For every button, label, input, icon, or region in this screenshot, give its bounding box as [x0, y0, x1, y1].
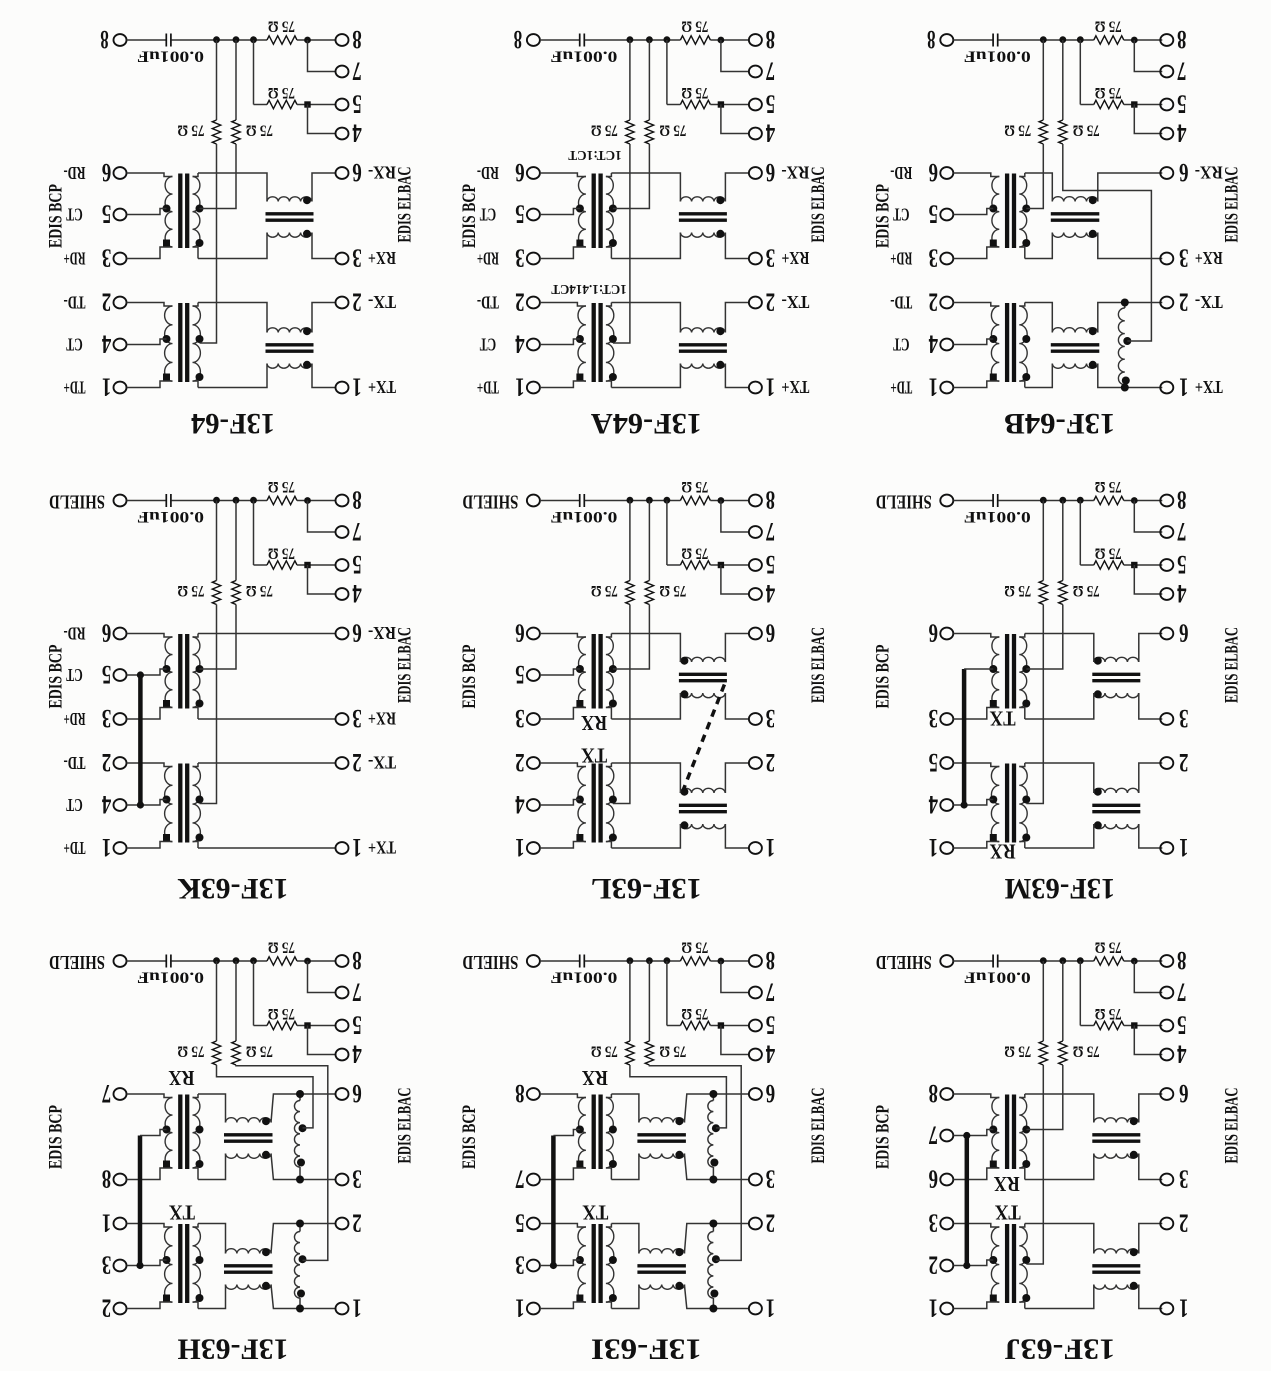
svg-text:3: 3 [1179, 1164, 1189, 1193]
svg-text:5: 5 [352, 89, 362, 118]
svg-text:1: 1 [1179, 833, 1189, 862]
svg-text:6: 6 [352, 1079, 362, 1108]
svg-text:75 Ω: 75 Ω [268, 545, 295, 562]
svg-text:1: 1 [929, 372, 939, 401]
svg-text:3: 3 [515, 704, 525, 733]
svg-text:RX+: RX+ [1195, 248, 1223, 268]
svg-text:8: 8 [927, 25, 936, 54]
svg-text:13F-64A: 13F-64A [591, 407, 702, 440]
svg-text:4: 4 [929, 790, 939, 819]
svg-text:75 Ω: 75 Ω [268, 18, 295, 35]
svg-text:EDIS ELBAC: EDIS ELBAC [396, 167, 416, 243]
svg-text:EDIS BCP: EDIS BCP [460, 1105, 480, 1169]
svg-text:3: 3 [352, 1164, 362, 1193]
svg-text:5: 5 [766, 550, 776, 579]
svg-text:1: 1 [515, 1293, 525, 1322]
svg-text:7: 7 [102, 1079, 112, 1108]
svg-text:RX: RX [990, 840, 1016, 864]
svg-text:RD-: RD- [477, 163, 499, 183]
svg-text:RX+: RX+ [368, 709, 396, 729]
svg-text:6: 6 [929, 618, 939, 647]
svg-text:2: 2 [102, 287, 112, 316]
svg-text:5: 5 [766, 89, 776, 118]
svg-text:6: 6 [766, 158, 776, 187]
svg-text:2: 2 [515, 748, 525, 777]
svg-text:6: 6 [929, 158, 939, 187]
svg-text:EDIS ELBAC: EDIS ELBAC [809, 627, 829, 703]
svg-text:7: 7 [1177, 517, 1187, 546]
svg-text:CT: CT [479, 204, 496, 224]
svg-text:5: 5 [515, 1208, 525, 1237]
svg-text:TX: TX [169, 1201, 195, 1225]
svg-text:2: 2 [929, 287, 939, 316]
svg-text:75 Ω: 75 Ω [681, 545, 708, 562]
svg-text:8: 8 [352, 25, 362, 54]
svg-text:1: 1 [352, 833, 362, 862]
svg-text:2: 2 [929, 1250, 939, 1279]
svg-text:TD-: TD- [890, 292, 912, 312]
svg-text:TD+: TD+ [890, 377, 912, 397]
svg-text:75 Ω: 75 Ω [1073, 1043, 1100, 1060]
svg-text:13F-64B: 13F-64B [1004, 407, 1115, 440]
svg-text:75 Ω: 75 Ω [681, 84, 708, 101]
svg-text:TX+: TX+ [368, 377, 396, 397]
svg-text:4: 4 [929, 329, 939, 358]
svg-text:TD-: TD- [477, 292, 499, 312]
svg-text:TX: TX [990, 707, 1016, 731]
svg-text:6: 6 [515, 618, 525, 647]
svg-text:4: 4 [515, 790, 525, 819]
svg-text:6: 6 [352, 618, 362, 647]
svg-text:EDIS BCP: EDIS BCP [460, 645, 480, 709]
svg-text:RD-: RD- [63, 623, 85, 643]
svg-text:RX-: RX- [368, 623, 396, 643]
svg-text:75 Ω: 75 Ω [1095, 1005, 1122, 1022]
svg-text:75 Ω: 75 Ω [1004, 1043, 1031, 1060]
svg-text:4: 4 [352, 579, 362, 608]
svg-text:RX: RX [581, 711, 607, 735]
svg-text:1: 1 [929, 833, 939, 862]
svg-text:75 Ω: 75 Ω [659, 1043, 686, 1060]
svg-text:75 Ω: 75 Ω [681, 18, 708, 35]
svg-text:TX: TX [582, 1201, 608, 1225]
svg-text:1CT:1.414CT: 1CT:1.414CT [551, 281, 627, 296]
svg-text:5: 5 [102, 660, 112, 689]
svg-text:0.001uF: 0.001uF [964, 508, 1031, 525]
svg-text:1: 1 [766, 833, 776, 862]
svg-text:5: 5 [1177, 1010, 1187, 1039]
svg-text:5: 5 [352, 550, 362, 579]
svg-text:RX: RX [994, 1172, 1020, 1196]
svg-text:8: 8 [515, 1079, 525, 1108]
svg-text:TX+: TX+ [368, 838, 396, 858]
svg-text:SHIELD: SHIELD [462, 490, 518, 512]
svg-text:TX-: TX- [368, 292, 396, 312]
svg-text:4: 4 [352, 1039, 362, 1068]
svg-text:2: 2 [766, 1208, 776, 1237]
svg-text:2: 2 [352, 1208, 362, 1237]
svg-text:3: 3 [1179, 704, 1189, 733]
svg-text:EDIS ELBAC: EDIS ELBAC [1222, 167, 1242, 243]
svg-text:0.001uF: 0.001uF [137, 508, 204, 525]
svg-text:EDIS ELBAC: EDIS ELBAC [1222, 1088, 1242, 1164]
svg-text:4: 4 [352, 118, 362, 147]
svg-text:TX-: TX- [368, 753, 396, 773]
svg-text:8: 8 [1177, 485, 1187, 514]
svg-text:4: 4 [102, 329, 112, 358]
svg-text:7: 7 [352, 517, 362, 546]
svg-text:75 Ω: 75 Ω [268, 478, 295, 495]
svg-text:2: 2 [766, 748, 776, 777]
svg-text:75 Ω: 75 Ω [178, 1043, 205, 1060]
svg-text:1: 1 [1179, 372, 1189, 401]
svg-text:2: 2 [352, 287, 362, 316]
svg-text:RX+: RX+ [368, 248, 396, 268]
svg-text:7: 7 [766, 517, 776, 546]
svg-text:3: 3 [102, 243, 112, 272]
svg-text:75 Ω: 75 Ω [268, 84, 295, 101]
svg-text:5: 5 [352, 1010, 362, 1039]
svg-text:75 Ω: 75 Ω [178, 122, 205, 139]
svg-text:3: 3 [102, 704, 112, 733]
svg-text:0.001uF: 0.001uF [137, 47, 204, 64]
svg-text:4: 4 [102, 790, 112, 819]
svg-text:7: 7 [1177, 977, 1187, 1006]
svg-text:6: 6 [1179, 1079, 1189, 1108]
svg-text:RD+: RD+ [63, 709, 85, 729]
svg-text:8: 8 [1177, 25, 1187, 54]
svg-text:1: 1 [766, 372, 776, 401]
svg-text:3: 3 [352, 704, 362, 733]
svg-text:0.001uF: 0.001uF [137, 968, 204, 985]
svg-text:3: 3 [102, 1250, 112, 1279]
svg-text:6: 6 [352, 158, 362, 187]
svg-text:5: 5 [1177, 550, 1187, 579]
svg-text:5: 5 [929, 199, 939, 228]
svg-text:EDIS BCP: EDIS BCP [47, 1105, 67, 1169]
svg-text:RX+: RX+ [781, 248, 809, 268]
svg-text:EDIS BCP: EDIS BCP [47, 184, 67, 248]
svg-text:TD-: TD- [63, 292, 85, 312]
svg-text:5: 5 [929, 748, 939, 777]
svg-text:75 Ω: 75 Ω [268, 1005, 295, 1022]
svg-text:CT: CT [66, 334, 83, 354]
svg-text:6: 6 [1179, 158, 1189, 187]
svg-text:EDIS ELBAC: EDIS ELBAC [1222, 627, 1242, 703]
svg-text:3: 3 [929, 1208, 939, 1237]
svg-text:2: 2 [1179, 287, 1189, 316]
svg-text:13F-63J: 13F-63J [1004, 1333, 1115, 1366]
svg-text:4: 4 [1177, 579, 1187, 608]
svg-text:3: 3 [766, 704, 776, 733]
svg-text:3: 3 [766, 243, 776, 272]
svg-text:6: 6 [929, 1164, 939, 1193]
svg-text:0.001uF: 0.001uF [964, 47, 1031, 64]
svg-text:7: 7 [352, 977, 362, 1006]
svg-text:8: 8 [102, 1164, 112, 1193]
svg-text:CT: CT [479, 334, 496, 354]
svg-text:EDIS ELBAC: EDIS ELBAC [809, 167, 829, 243]
svg-text:TX-: TX- [1195, 292, 1223, 312]
svg-text:1: 1 [515, 833, 525, 862]
svg-text:1: 1 [515, 372, 525, 401]
svg-text:13F-63K: 13F-63K [177, 872, 289, 905]
svg-text:5: 5 [515, 199, 525, 228]
svg-text:75 Ω: 75 Ω [681, 939, 708, 956]
svg-text:RX: RX [582, 1066, 608, 1090]
svg-text:0.001uF: 0.001uF [550, 47, 617, 64]
svg-text:75 Ω: 75 Ω [681, 478, 708, 495]
svg-text:8: 8 [1177, 946, 1187, 975]
svg-text:75 Ω: 75 Ω [1095, 939, 1122, 956]
svg-text:SHIELD: SHIELD [49, 490, 105, 512]
svg-text:EDIS BCP: EDIS BCP [460, 184, 480, 248]
svg-text:2: 2 [102, 1293, 112, 1322]
svg-text:75 Ω: 75 Ω [591, 582, 618, 599]
svg-text:TD-: TD- [63, 753, 85, 773]
svg-text:SHIELD: SHIELD [876, 490, 932, 512]
svg-text:75 Ω: 75 Ω [246, 122, 273, 139]
svg-text:CT: CT [893, 204, 910, 224]
svg-text:8: 8 [514, 25, 523, 54]
svg-text:4: 4 [766, 118, 776, 147]
svg-text:EDIS BCP: EDIS BCP [873, 645, 893, 709]
svg-text:1: 1 [352, 372, 362, 401]
svg-text:3: 3 [766, 1164, 776, 1193]
svg-text:EDIS ELBAC: EDIS ELBAC [396, 627, 416, 703]
svg-text:1CT:1CT: 1CT:1CT [568, 147, 622, 162]
svg-text:75 Ω: 75 Ω [1095, 18, 1122, 35]
svg-text:RD+: RD+ [477, 248, 499, 268]
svg-text:8: 8 [352, 485, 362, 514]
svg-text:4: 4 [1177, 118, 1187, 147]
svg-text:2: 2 [1179, 1208, 1189, 1237]
svg-text:0.001uF: 0.001uF [964, 968, 1031, 985]
svg-text:1: 1 [1179, 1293, 1189, 1322]
svg-text:CT: CT [893, 334, 910, 354]
svg-text:75 Ω: 75 Ω [681, 1005, 708, 1022]
svg-text:7: 7 [766, 56, 776, 85]
svg-text:0.001uF: 0.001uF [550, 968, 617, 985]
svg-text:1: 1 [102, 1208, 112, 1237]
svg-text:EDIS BCP: EDIS BCP [873, 184, 893, 248]
svg-text:75 Ω: 75 Ω [1095, 84, 1122, 101]
svg-text:13F-63L: 13F-63L [591, 872, 702, 905]
svg-text:CT: CT [66, 795, 83, 815]
svg-text:1: 1 [929, 1293, 939, 1322]
svg-text:6: 6 [766, 618, 776, 647]
svg-text:5: 5 [766, 1010, 776, 1039]
svg-text:3: 3 [929, 243, 939, 272]
svg-text:TX: TX [995, 1201, 1021, 1225]
svg-text:TX-: TX- [781, 292, 809, 312]
svg-text:13F-63I: 13F-63I [591, 1333, 702, 1366]
svg-text:2: 2 [515, 287, 525, 316]
svg-text:TD+: TD+ [477, 377, 499, 397]
svg-text:75 Ω: 75 Ω [1095, 545, 1122, 562]
svg-text:8: 8 [929, 1079, 939, 1108]
svg-text:2: 2 [766, 287, 776, 316]
svg-text:7: 7 [352, 56, 362, 85]
svg-text:6: 6 [1179, 618, 1189, 647]
svg-text:EDIS ELBAC: EDIS ELBAC [809, 1088, 829, 1164]
svg-text:SHIELD: SHIELD [462, 951, 518, 973]
svg-text:RX: RX [169, 1066, 195, 1090]
svg-text:7: 7 [515, 1164, 525, 1193]
svg-text:75 Ω: 75 Ω [591, 1043, 618, 1060]
svg-text:RD-: RD- [63, 163, 85, 183]
svg-text:75 Ω: 75 Ω [1004, 582, 1031, 599]
svg-text:EDIS BCP: EDIS BCP [873, 1105, 893, 1169]
svg-text:TX+: TX+ [1195, 377, 1223, 397]
svg-text:0.001uF: 0.001uF [550, 508, 617, 525]
svg-text:75 Ω: 75 Ω [591, 122, 618, 139]
svg-text:2: 2 [102, 748, 112, 777]
svg-text:EDIS BCP: EDIS BCP [47, 645, 67, 709]
svg-text:RX-: RX- [1195, 163, 1223, 183]
svg-text:4: 4 [766, 579, 776, 608]
svg-text:8: 8 [766, 25, 776, 54]
svg-text:SHIELD: SHIELD [49, 951, 105, 973]
svg-text:4: 4 [1177, 1039, 1187, 1068]
svg-text:3: 3 [515, 1250, 525, 1279]
svg-text:13F-63H: 13F-63H [178, 1333, 289, 1366]
svg-text:75 Ω: 75 Ω [659, 582, 686, 599]
svg-text:CT: CT [66, 665, 83, 685]
svg-text:8: 8 [766, 946, 776, 975]
svg-text:6: 6 [102, 618, 112, 647]
svg-text:TX: TX [581, 743, 607, 767]
svg-text:RX-: RX- [368, 163, 396, 183]
svg-text:7: 7 [766, 977, 776, 1006]
svg-text:75 Ω: 75 Ω [1073, 122, 1100, 139]
svg-text:8: 8 [766, 485, 776, 514]
svg-text:1: 1 [102, 833, 112, 862]
svg-text:TD+: TD+ [63, 838, 85, 858]
svg-text:6: 6 [102, 158, 112, 187]
svg-text:5: 5 [1177, 89, 1187, 118]
svg-text:SHIELD: SHIELD [876, 951, 932, 973]
svg-text:TX+: TX+ [781, 377, 809, 397]
svg-text:13F-63M: 13F-63M [1004, 872, 1115, 905]
svg-text:5: 5 [515, 660, 525, 689]
svg-text:1: 1 [766, 1293, 776, 1322]
svg-text:75 Ω: 75 Ω [268, 939, 295, 956]
svg-text:RD-: RD- [890, 163, 912, 183]
svg-text:75 Ω: 75 Ω [246, 582, 273, 599]
svg-text:1: 1 [352, 1293, 362, 1322]
svg-text:75 Ω: 75 Ω [659, 122, 686, 139]
svg-text:3: 3 [1179, 243, 1189, 272]
svg-text:75 Ω: 75 Ω [1073, 582, 1100, 599]
svg-text:2: 2 [1179, 748, 1189, 777]
svg-text:4: 4 [515, 329, 525, 358]
svg-text:1: 1 [102, 372, 112, 401]
svg-text:6: 6 [515, 158, 525, 187]
svg-text:4: 4 [766, 1039, 776, 1068]
svg-text:RD+: RD+ [63, 248, 85, 268]
svg-text:6: 6 [766, 1079, 776, 1108]
svg-text:75 Ω: 75 Ω [1004, 122, 1031, 139]
svg-text:3: 3 [515, 243, 525, 272]
svg-text:2: 2 [352, 748, 362, 777]
svg-text:RD+: RD+ [890, 248, 912, 268]
svg-text:3: 3 [352, 243, 362, 272]
svg-text:RX-: RX- [781, 163, 809, 183]
svg-text:8: 8 [352, 946, 362, 975]
svg-text:CT: CT [66, 204, 83, 224]
svg-text:75 Ω: 75 Ω [246, 1043, 273, 1060]
svg-text:TD+: TD+ [63, 377, 85, 397]
svg-text:7: 7 [929, 1120, 939, 1149]
svg-text:EDIS ELBAC: EDIS ELBAC [396, 1088, 416, 1164]
svg-text:75 Ω: 75 Ω [1095, 478, 1122, 495]
svg-text:5: 5 [102, 199, 112, 228]
svg-text:3: 3 [929, 704, 939, 733]
svg-text:75 Ω: 75 Ω [178, 582, 205, 599]
svg-text:8: 8 [100, 25, 109, 54]
svg-text:7: 7 [1177, 56, 1187, 85]
svg-text:13F-64: 13F-64 [191, 407, 275, 440]
